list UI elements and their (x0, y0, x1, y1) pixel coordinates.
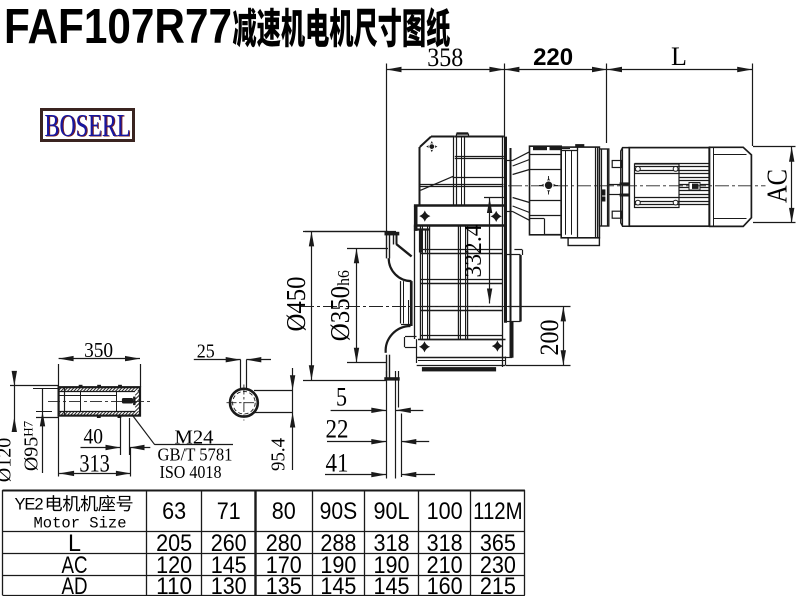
svg-text:332.4: 332.4 (461, 225, 487, 278)
svg-text:130: 130 (211, 573, 247, 596)
svg-text:200: 200 (535, 320, 564, 356)
svg-text:145: 145 (320, 573, 356, 596)
svg-text:350: 350 (84, 338, 113, 362)
svg-text:BOSERL: BOSERL (45, 107, 131, 143)
svg-text:160: 160 (427, 573, 463, 596)
svg-text:ISO 4018: ISO 4018 (160, 462, 222, 482)
svg-text:Ø450: Ø450 (281, 277, 311, 332)
svg-text:71: 71 (217, 498, 241, 525)
svg-text:41: 41 (326, 449, 349, 478)
svg-text:25: 25 (197, 340, 215, 362)
svg-text:Ø95H7: Ø95H7 (21, 420, 43, 471)
svg-text:AC: AC (763, 169, 794, 203)
svg-text:95.4: 95.4 (268, 438, 290, 471)
svg-text:358: 358 (427, 43, 463, 72)
svg-text:110: 110 (156, 573, 192, 596)
svg-text:22: 22 (326, 414, 349, 443)
svg-text:135: 135 (266, 573, 302, 596)
svg-text:100: 100 (427, 498, 463, 525)
svg-text:313: 313 (79, 451, 110, 478)
svg-text:63: 63 (162, 498, 186, 525)
svg-text:145: 145 (374, 573, 410, 596)
svg-text:220: 220 (533, 44, 573, 71)
svg-text:90L: 90L (374, 498, 410, 525)
svg-text:5: 5 (336, 383, 347, 412)
svg-text:FAF107R77: FAF107R77 (4, 0, 232, 54)
svg-text:Ø350h6: Ø350h6 (325, 270, 355, 341)
svg-text:80: 80 (272, 498, 296, 525)
svg-text:L: L (671, 42, 687, 71)
svg-text:40: 40 (84, 424, 104, 449)
svg-text:90S: 90S (320, 498, 358, 525)
svg-text:215: 215 (480, 573, 516, 596)
svg-text:AD: AD (62, 573, 88, 596)
svg-text:YE2: YE2 (15, 496, 44, 514)
svg-text:112M: 112M (473, 498, 523, 525)
svg-text:Ø120: Ø120 (0, 438, 16, 482)
